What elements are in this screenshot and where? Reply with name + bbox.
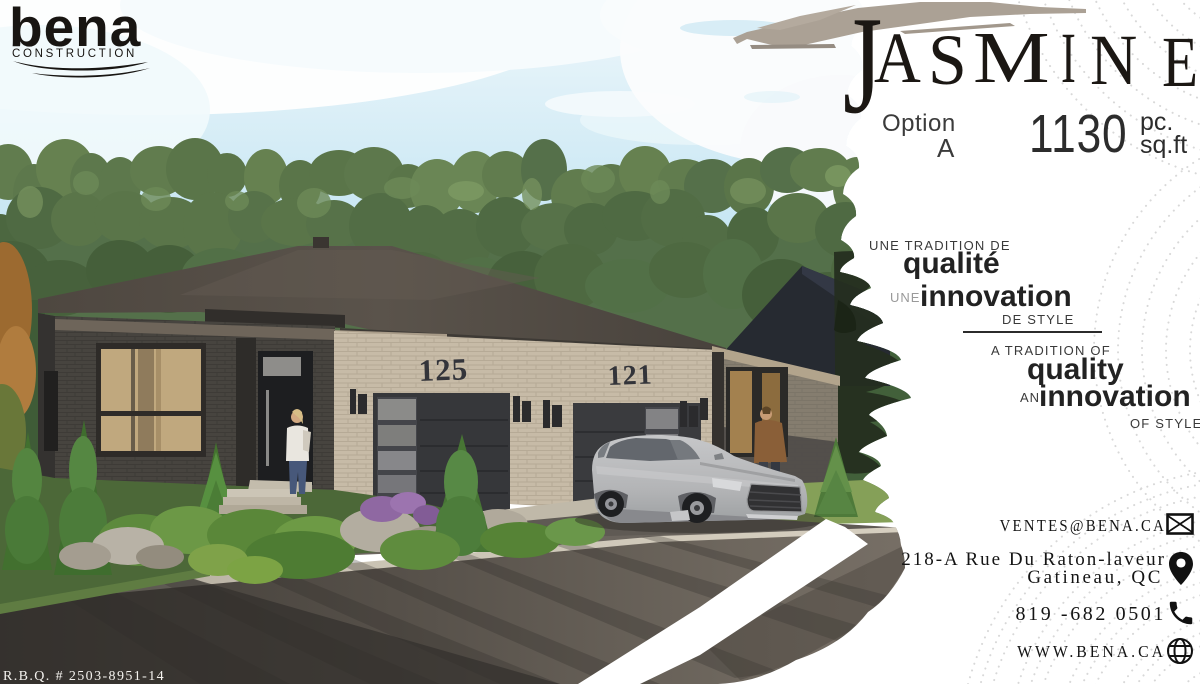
svg-text:CONSTRUCTION: CONSTRUCTION bbox=[12, 48, 137, 60]
svg-text:819 -682 0501: 819 -682 0501 bbox=[1016, 603, 1166, 625]
svg-text:I: I bbox=[1061, 18, 1076, 97]
svg-text:VENTES@BENA.CA: VENTES@BENA.CA bbox=[1000, 517, 1166, 535]
svg-text:121: 121 bbox=[607, 359, 653, 392]
svg-text:1130: 1130 bbox=[1029, 104, 1127, 164]
svg-text:125: 125 bbox=[418, 351, 469, 388]
svg-text:E: E bbox=[1162, 23, 1198, 103]
svg-text:OF STYLE: OF STYLE bbox=[1130, 416, 1200, 431]
svg-text:Gatineau, QC: Gatineau, QC bbox=[1027, 567, 1163, 588]
svg-text:R.B.Q. # 2503-8951-14: R.B.Q. # 2503-8951-14 bbox=[3, 669, 165, 684]
svg-text:AN: AN bbox=[1020, 390, 1040, 405]
svg-text:qualité: qualité bbox=[903, 247, 1000, 280]
svg-text:innovation: innovation bbox=[920, 280, 1072, 313]
svg-text:A: A bbox=[937, 133, 955, 163]
svg-text:DE STYLE: DE STYLE bbox=[1002, 312, 1074, 327]
svg-text:WWW.BENA.CA: WWW.BENA.CA bbox=[1017, 641, 1166, 661]
svg-text:M: M bbox=[973, 18, 1050, 98]
svg-text:A: A bbox=[874, 18, 921, 98]
svg-text:UNE: UNE bbox=[890, 290, 920, 305]
svg-text:innovation: innovation bbox=[1039, 380, 1191, 413]
svg-text:sq.ft: sq.ft bbox=[1140, 131, 1187, 159]
svg-text:N: N bbox=[1090, 20, 1137, 99]
svg-text:S: S bbox=[928, 21, 967, 100]
